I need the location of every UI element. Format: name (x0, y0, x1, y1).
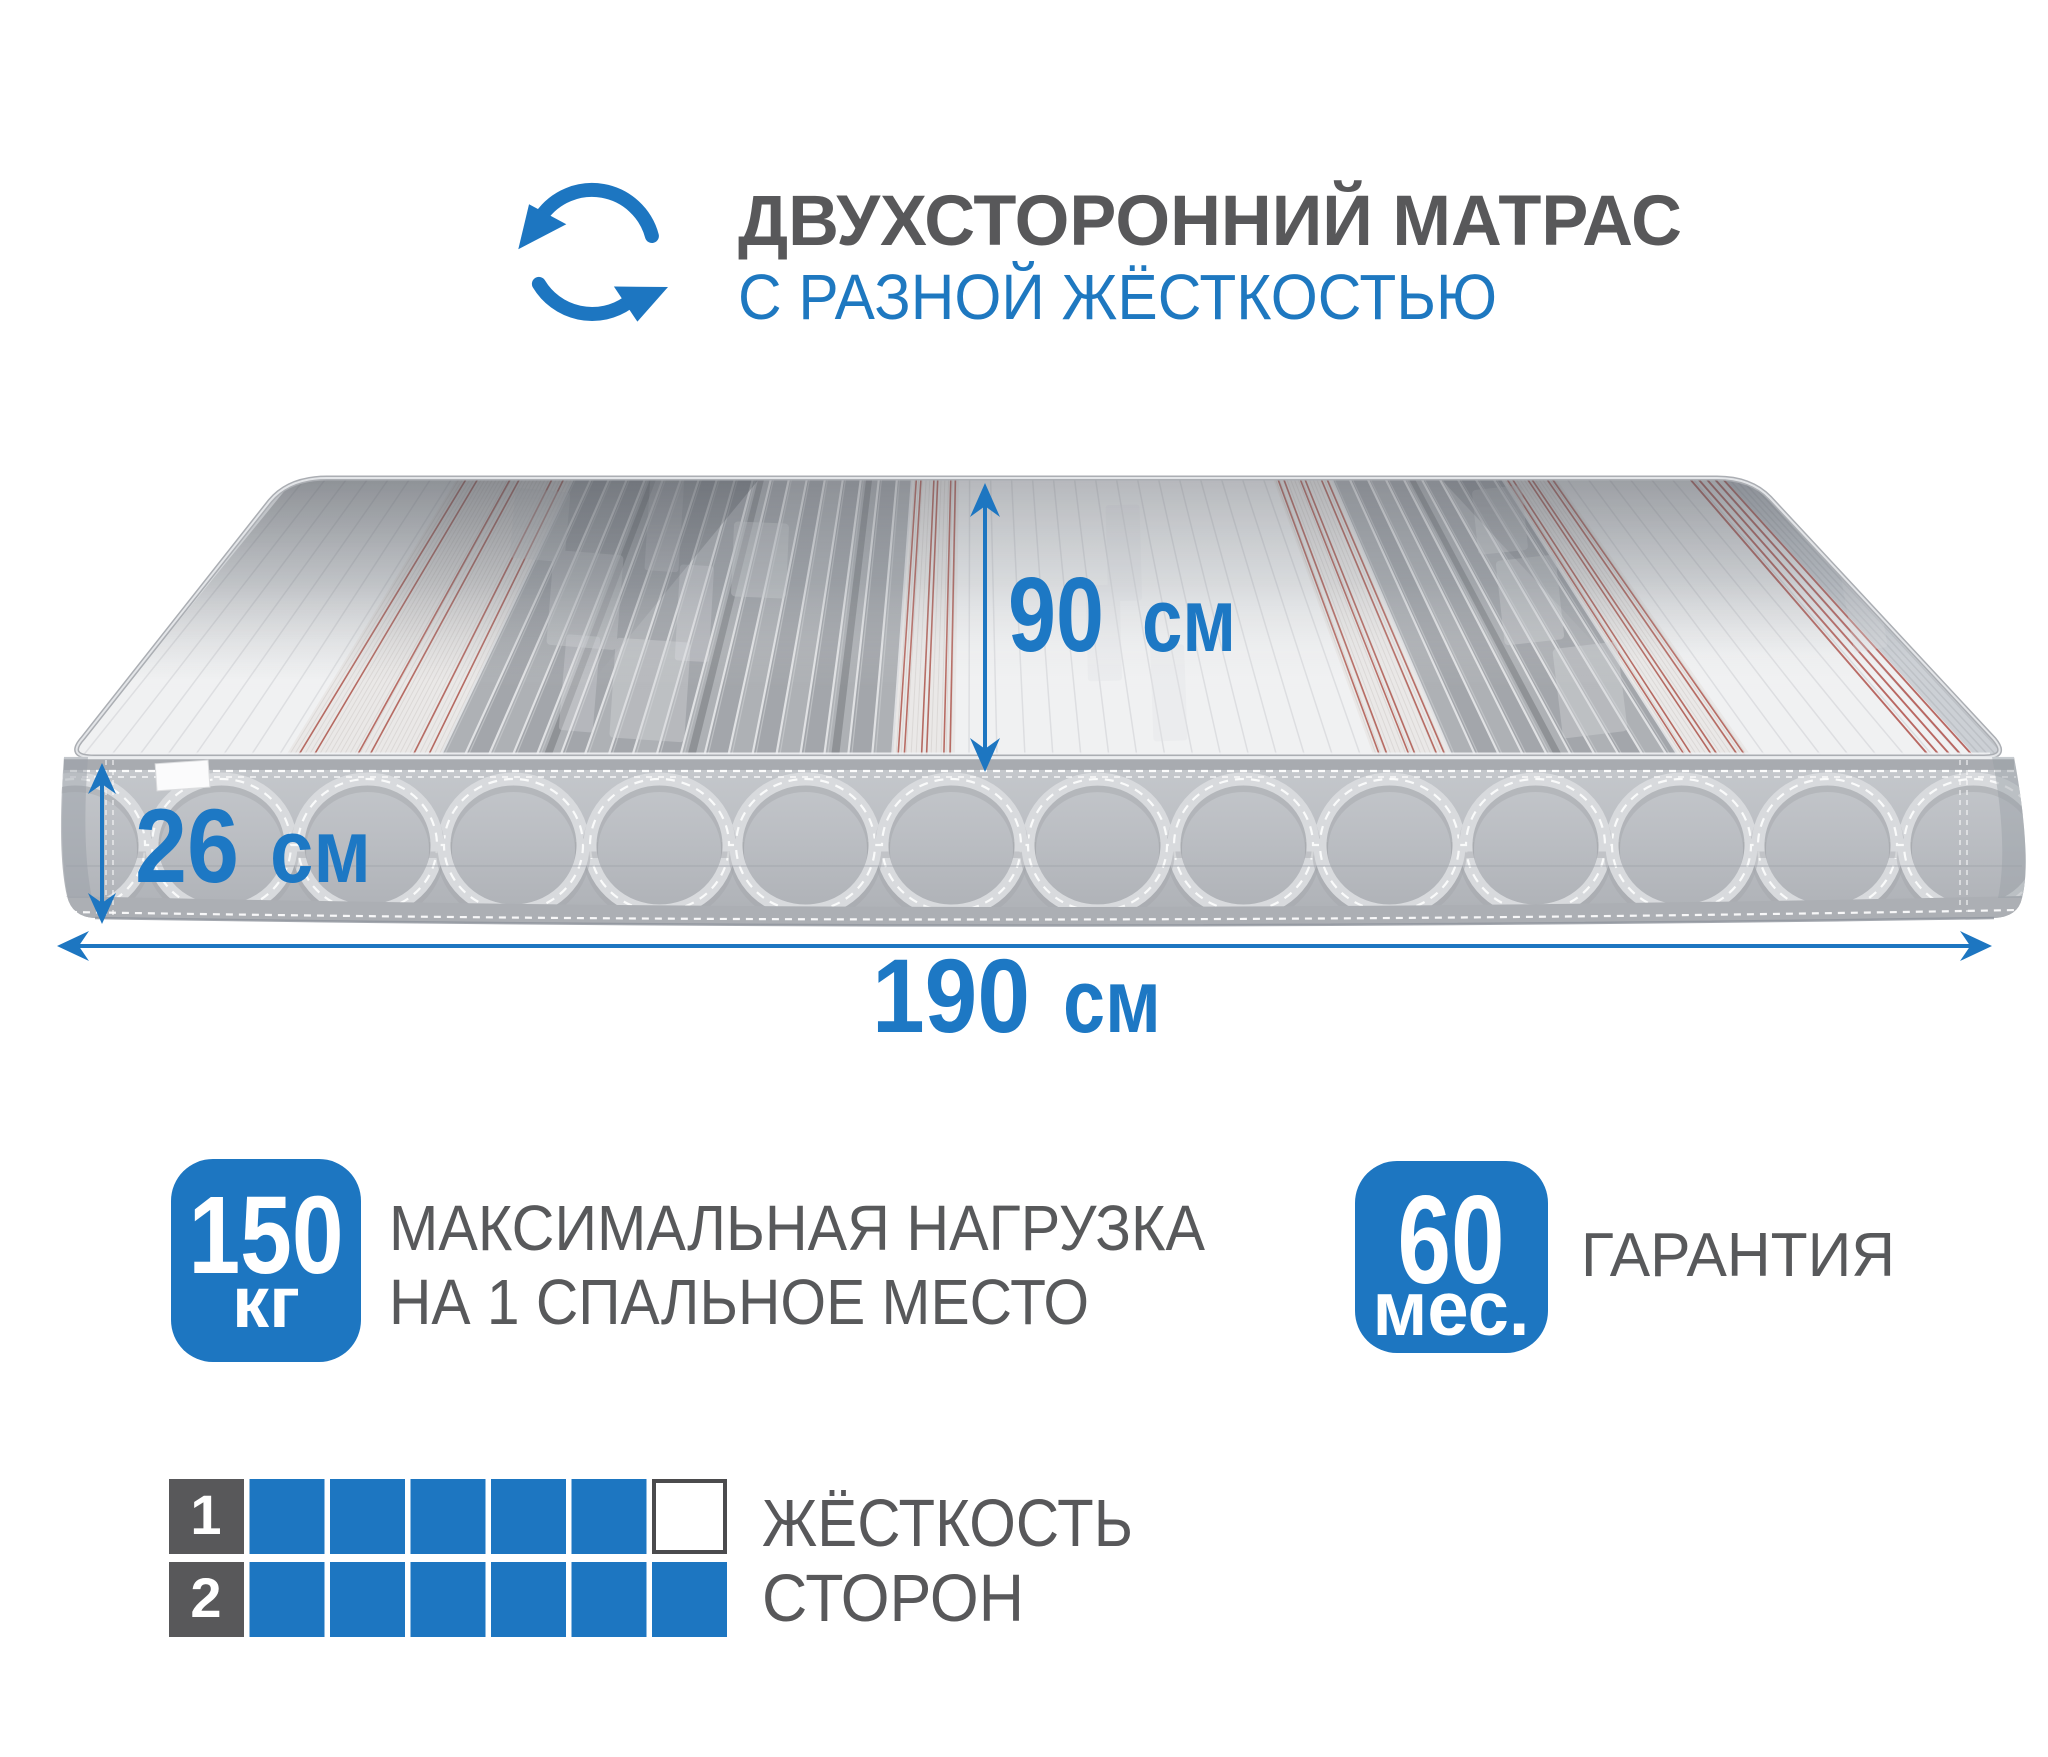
svg-text:МАКСИМАЛЬНАЯ НАГРУЗКА: МАКСИМАЛЬНАЯ НАГРУЗКА (389, 1192, 1205, 1264)
svg-text:190: 190 (872, 938, 1030, 1055)
svg-text:ДВУХСТОРОННИЙ МАТРАС: ДВУХСТОРОННИЙ МАТРАС (738, 181, 1682, 261)
svg-text:СТОРОН: СТОРОН (762, 1561, 1024, 1636)
svg-text:1: 1 (190, 1483, 221, 1546)
svg-text:см: см (1063, 952, 1161, 1052)
svg-text:см: см (1142, 571, 1236, 671)
svg-text:мес.: мес. (1373, 1266, 1530, 1352)
svg-text:см: см (270, 802, 371, 902)
svg-text:кг: кг (232, 1263, 300, 1343)
svg-text:26: 26 (135, 788, 239, 905)
svg-text:2: 2 (190, 1566, 221, 1629)
svg-text:С РАЗНОЙ ЖЁСТКОСТЬЮ: С РАЗНОЙ ЖЁСТКОСТЬЮ (738, 260, 1497, 333)
svg-text:ЖЁСТКОСТЬ: ЖЁСТКОСТЬ (762, 1486, 1133, 1561)
svg-text:90: 90 (1008, 556, 1104, 674)
svg-text:ГАРАНТИЯ: ГАРАНТИЯ (1581, 1221, 1895, 1290)
svg-text:НА 1 СПАЛЬНОЕ МЕСТО: НА 1 СПАЛЬНОЕ МЕСТО (389, 1266, 1089, 1338)
